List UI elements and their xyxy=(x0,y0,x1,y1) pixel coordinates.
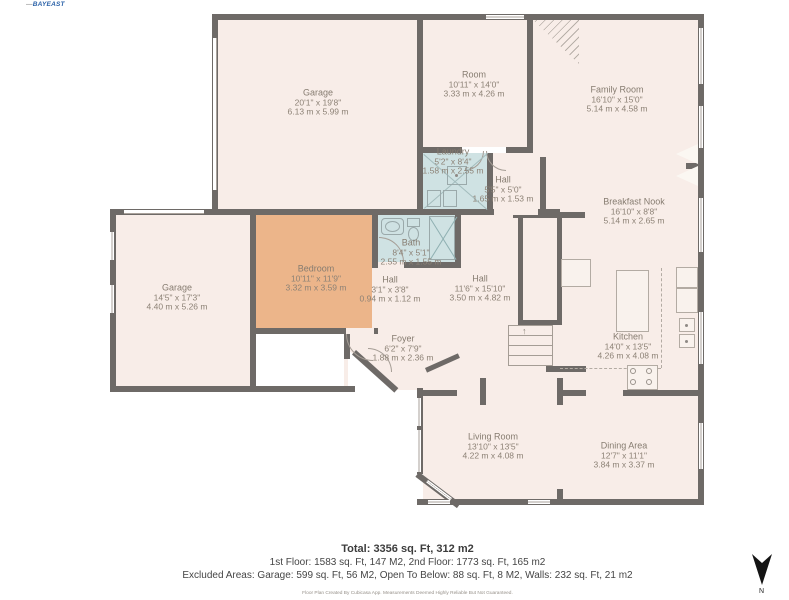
room-dims-metric: 5.14 m x 4.58 m xyxy=(587,105,648,115)
floorplan-page: —BAYEAST ↑ xyxy=(0,0,789,600)
window xyxy=(699,28,703,84)
room-dims-metric: 4.22 m x 4.08 m xyxy=(463,452,524,462)
room-dims-metric: 1.65 m x 1.53 m xyxy=(473,195,534,205)
room-label-dining-area: Dining Area 12'7" x 11'1" 3.84 m x 3.37 … xyxy=(594,442,655,471)
footer-summary: Total: 3356 sq. Ft, 312 m2 1st Floor: 15… xyxy=(13,543,789,596)
room-label-laundry: Laundry 5'2" x 8'4" 1.58 m x 2.55 m xyxy=(423,148,484,177)
counter-cabinet xyxy=(676,267,698,288)
room-dims-metric: 1.88 m x 2.36 m xyxy=(373,354,434,364)
window xyxy=(110,285,114,313)
wall xyxy=(540,157,546,215)
burner-icon xyxy=(630,379,636,385)
room-dims-metric: 3.50 m x 4.82 m xyxy=(450,294,511,304)
fixture-dot xyxy=(685,340,688,343)
dryer-icon xyxy=(443,190,457,207)
wall xyxy=(557,378,563,405)
window xyxy=(486,15,524,19)
total-area-text: Total: 3356 sq. Ft, 312 m2 xyxy=(13,543,789,555)
room-label-living-room: Living Room 13'10" x 13'5" 4.22 m x 4.08… xyxy=(463,433,524,462)
disclaimer-text: Floor Plan Created By Cubicasa App. Meas… xyxy=(13,591,789,596)
window xyxy=(528,500,550,504)
room-dims-metric: 4.40 m x 5.26 m xyxy=(147,303,208,313)
floors-area-text: 1st Floor: 1583 sq. Ft, 147 M2, 2nd Floo… xyxy=(13,557,789,568)
wall xyxy=(110,386,355,392)
wall xyxy=(250,209,256,392)
garage-door xyxy=(213,38,217,190)
washer-icon xyxy=(427,190,441,207)
window xyxy=(699,312,703,364)
burner-icon xyxy=(646,379,652,385)
wall xyxy=(560,390,586,396)
north-label: N xyxy=(759,588,764,595)
window xyxy=(699,106,703,148)
burner-icon xyxy=(646,368,652,374)
wall xyxy=(518,218,523,322)
burner-icon xyxy=(630,368,636,374)
fixture-dot xyxy=(685,324,688,327)
room-label-bedroom: Bedroom 10'11" x 11'9" 3.32 m x 3.59 m xyxy=(286,265,347,294)
wall-opening xyxy=(494,209,538,215)
excluded-areas-text: Excluded Areas: Garage: 599 sq. Ft, 56 M… xyxy=(13,570,789,581)
room-label-room: Room 10'11" x 14'0" 3.33 m x 4.26 m xyxy=(444,71,505,100)
room-dims-metric: 5.14 m x 2.65 m xyxy=(603,217,665,227)
north-arrow-icon xyxy=(750,553,774,587)
room-label-family-room: Family Room 16'10" x 15'0" 5.14 m x 4.58… xyxy=(587,86,648,115)
room-label-kitchen: Kitchen 14'0" x 13'5" 4.26 m x 4.08 m xyxy=(598,333,659,362)
room-dims-metric: 6.13 m x 5.99 m xyxy=(288,108,349,118)
stairs-mid xyxy=(508,325,553,366)
room-label-hall-upper: Hall 5'5" x 5'0" 1.65 m x 1.53 m xyxy=(473,176,534,205)
window xyxy=(417,398,421,426)
wall xyxy=(546,366,586,372)
logo-text: BAYEAST xyxy=(33,1,65,8)
window xyxy=(428,500,450,504)
room-dims-metric: 0.94 m x 1.12 m xyxy=(360,295,421,305)
room-label-hall-small: Hall 3'1" x 3'8" 0.94 m x 1.12 m xyxy=(360,276,421,305)
toilet-tank-icon xyxy=(407,218,420,227)
bath-sink-bowl-icon xyxy=(385,221,400,232)
room-dims-metric: 3.33 m x 4.26 m xyxy=(444,90,505,100)
window xyxy=(110,232,114,260)
counter-edge xyxy=(661,268,662,368)
room-label-breakfast-nook: Breakfast Nook 16'10" x 8'8" 5.14 m x 2.… xyxy=(603,198,665,227)
room-dims-metric: 3.84 m x 3.37 m xyxy=(594,461,655,471)
window xyxy=(417,430,421,472)
room-dims-metric: 2.55 m x 1.55 m xyxy=(381,258,442,268)
wall xyxy=(372,209,378,268)
wall xyxy=(623,390,704,396)
room-label-hall-main: Hall 11'6" x 15'10" 3.50 m x 4.82 m xyxy=(450,275,511,304)
logo-dash: — xyxy=(26,1,33,8)
bayeast-logo: —BAYEAST xyxy=(26,1,65,8)
room-dims-metric: 4.26 m x 4.08 m xyxy=(598,352,659,362)
kitchen-island xyxy=(616,270,649,332)
room-label-foyer: Foyer 6'2" x 7'9" 1.88 m x 2.36 m xyxy=(373,335,434,364)
stairs-up-arrow: ↑ xyxy=(522,326,527,336)
window xyxy=(699,198,703,252)
counter-cabinet xyxy=(676,288,698,313)
window xyxy=(699,423,703,469)
garage-door xyxy=(124,210,204,214)
wall xyxy=(480,378,486,405)
room-dims-metric: 3.32 m x 3.59 m xyxy=(286,284,347,294)
room-label-garage-top: Garage 20'1" x 19'8" 6.13 m x 5.99 m xyxy=(288,89,349,118)
wall xyxy=(212,14,704,20)
fridge-icon xyxy=(561,259,591,287)
wall xyxy=(417,390,457,396)
wall xyxy=(417,14,423,215)
room-label-bath: Bath 8'4" x 5'1" 2.55 m x 1.55 m xyxy=(381,239,442,268)
wall xyxy=(527,14,533,153)
wall xyxy=(557,489,563,505)
wall xyxy=(518,320,562,325)
room-label-garage-left: Garage 14'5" x 17'3" 4.40 m x 5.26 m xyxy=(147,284,208,313)
